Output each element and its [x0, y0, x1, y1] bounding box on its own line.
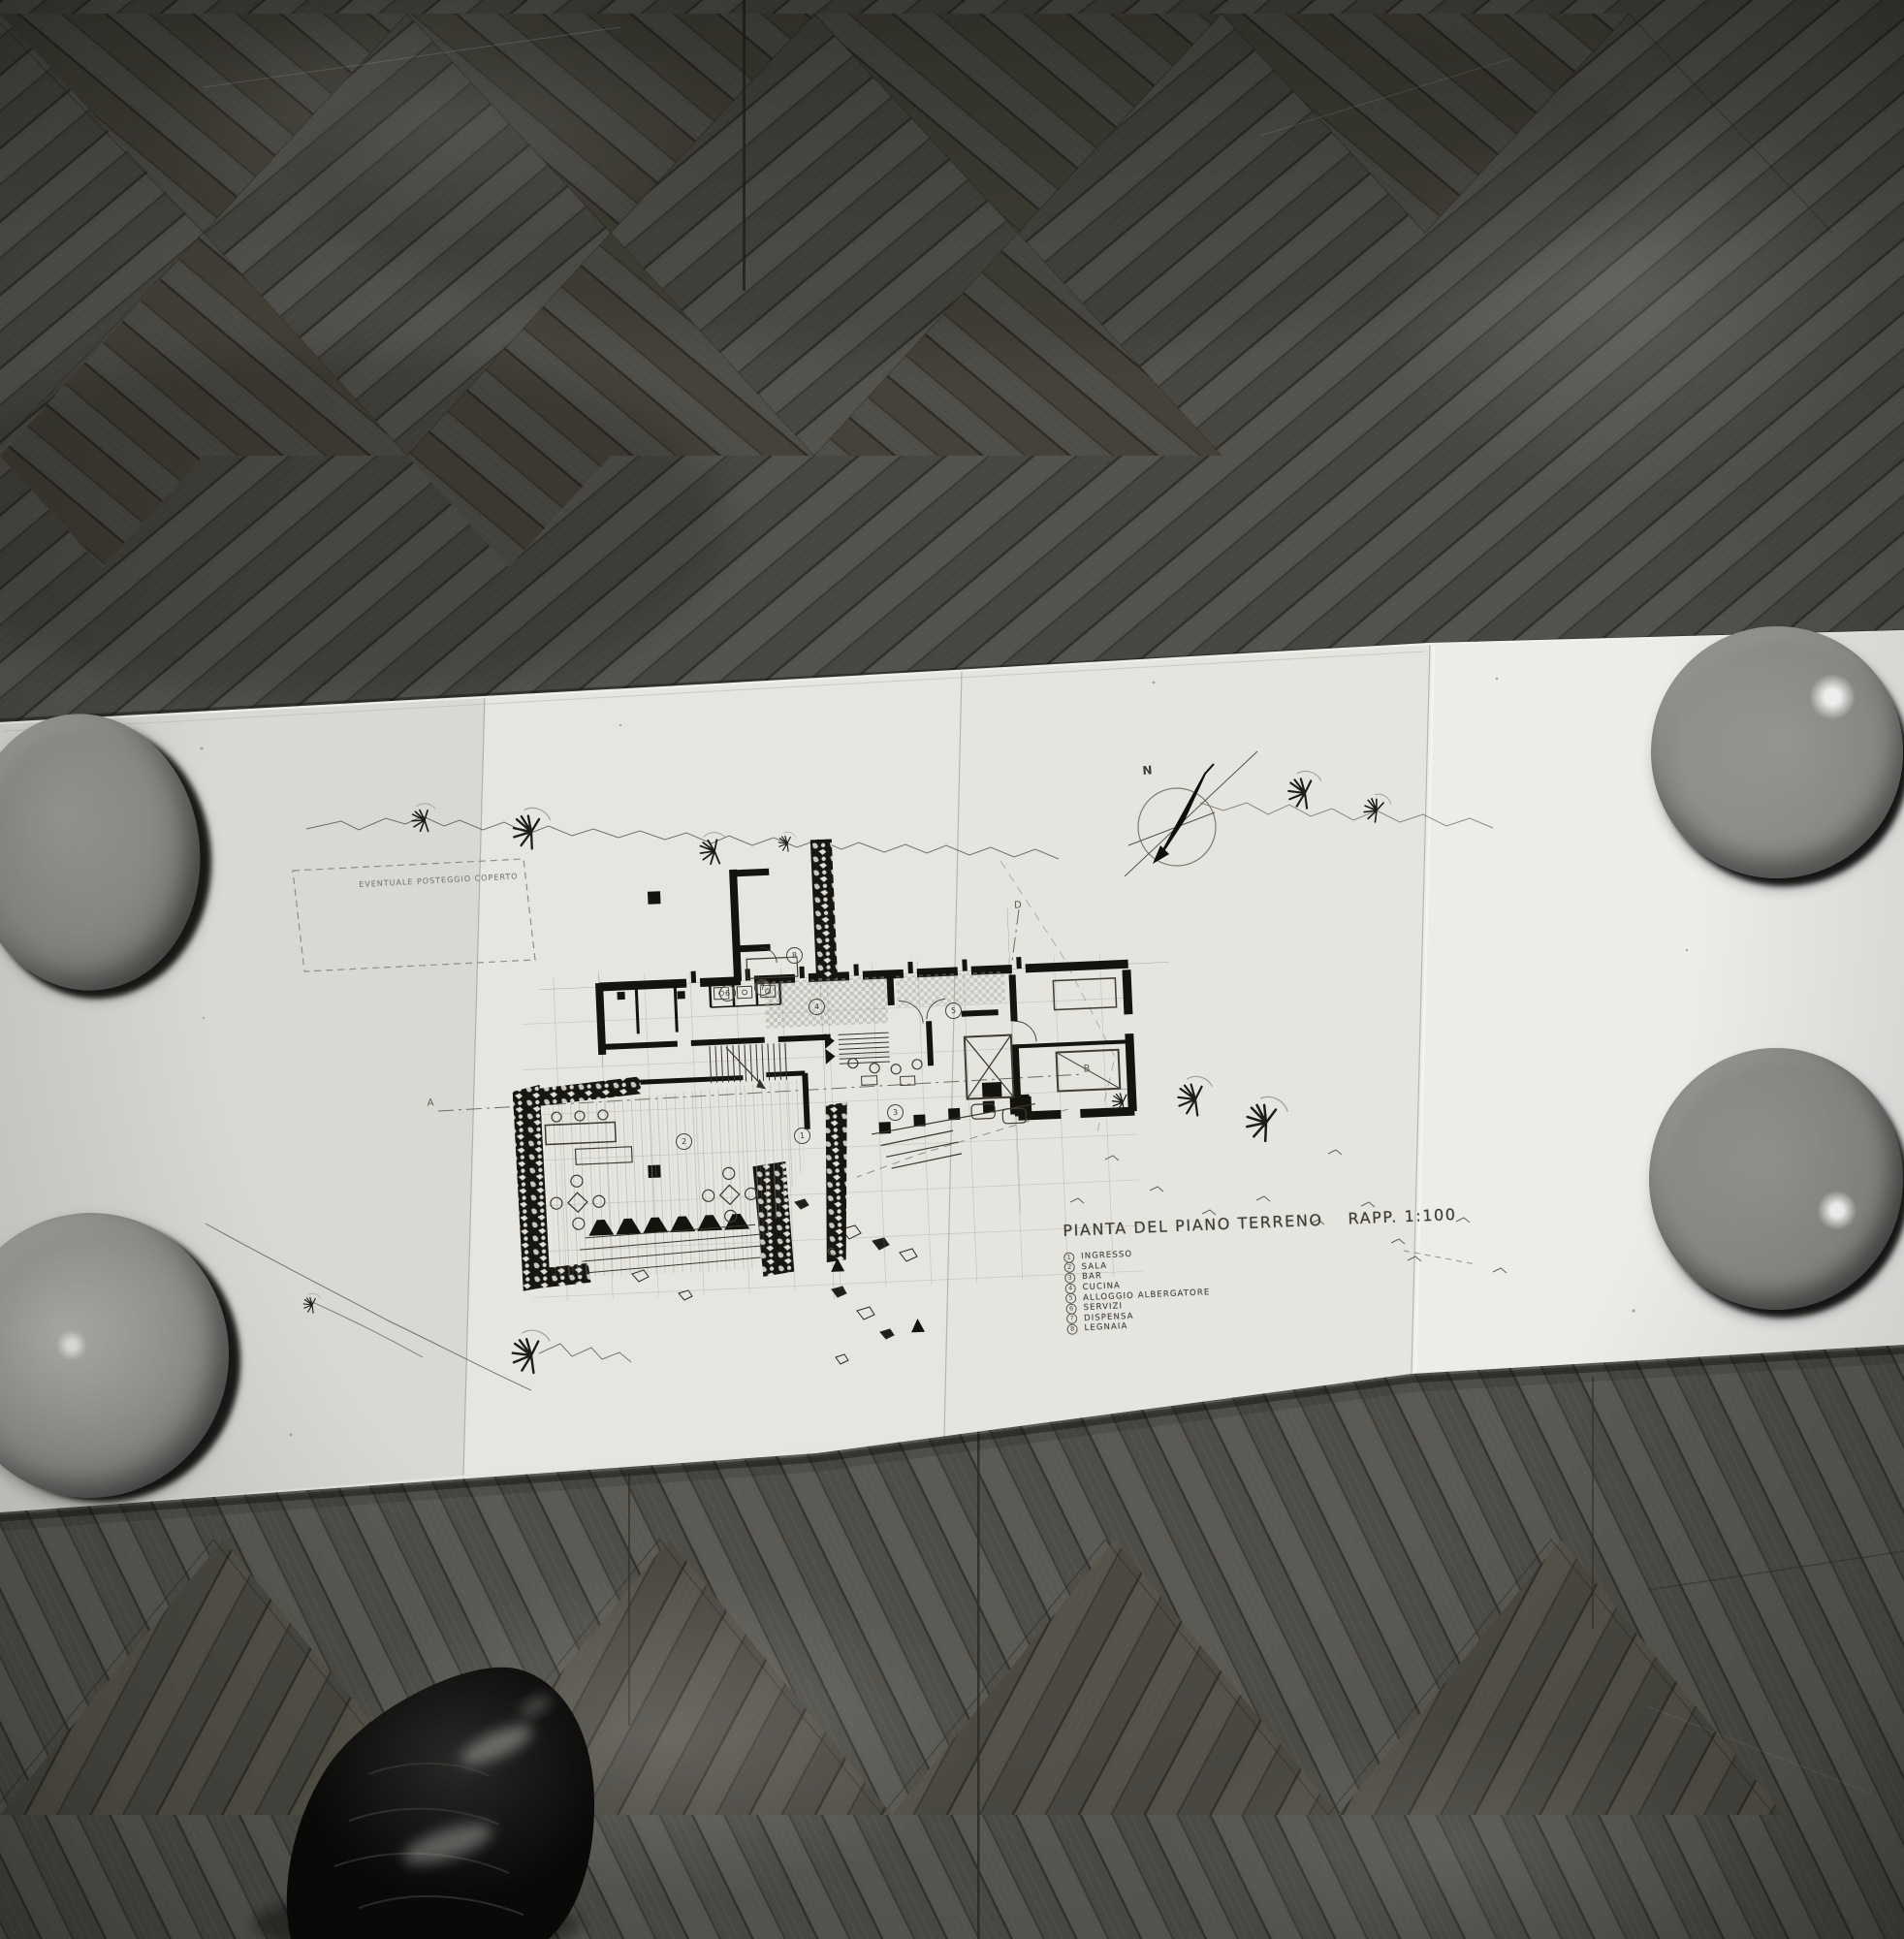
bw-photo-floorplan-on-parquet: PIANTA DEL PIANO TERRENORAPP. 1:100 EVEN… — [0, 0, 1904, 1939]
legend-label: LEGNAIA — [1084, 1322, 1127, 1334]
legend-number: 2 — [1063, 1262, 1074, 1273]
legend-number: 8 — [1066, 1323, 1077, 1334]
legend-number: 3 — [1064, 1272, 1075, 1283]
paper-panel-2 — [463, 671, 962, 1476]
section-marker-C: C — [827, 1247, 835, 1257]
section-marker-B: B — [1083, 1064, 1090, 1074]
legend-label: BAR — [1082, 1272, 1102, 1283]
legend-label: SALA — [1081, 1261, 1107, 1272]
section-marker-A: A — [427, 1097, 433, 1108]
bowl-top-right — [1651, 626, 1903, 878]
legend-number: 5 — [1065, 1293, 1076, 1304]
legend-number: 7 — [1066, 1314, 1077, 1324]
drawing-sheet — [0, 0, 1904, 1939]
section-marker-D: D — [1014, 900, 1022, 910]
bowl-right-middle — [1649, 1048, 1903, 1310]
kitchen-tile-floor — [764, 976, 888, 1028]
north-label: N — [1142, 763, 1153, 778]
paper-sheet — [0, 631, 1904, 1524]
legend-number: 4 — [1064, 1283, 1075, 1293]
room-legend: 1INGRESSO2SALA3BAR4CUCINA5ALLOGGIO ALBER… — [1063, 1246, 1212, 1334]
legend-number: 6 — [1065, 1303, 1076, 1314]
legend-number: 1 — [1063, 1252, 1074, 1262]
